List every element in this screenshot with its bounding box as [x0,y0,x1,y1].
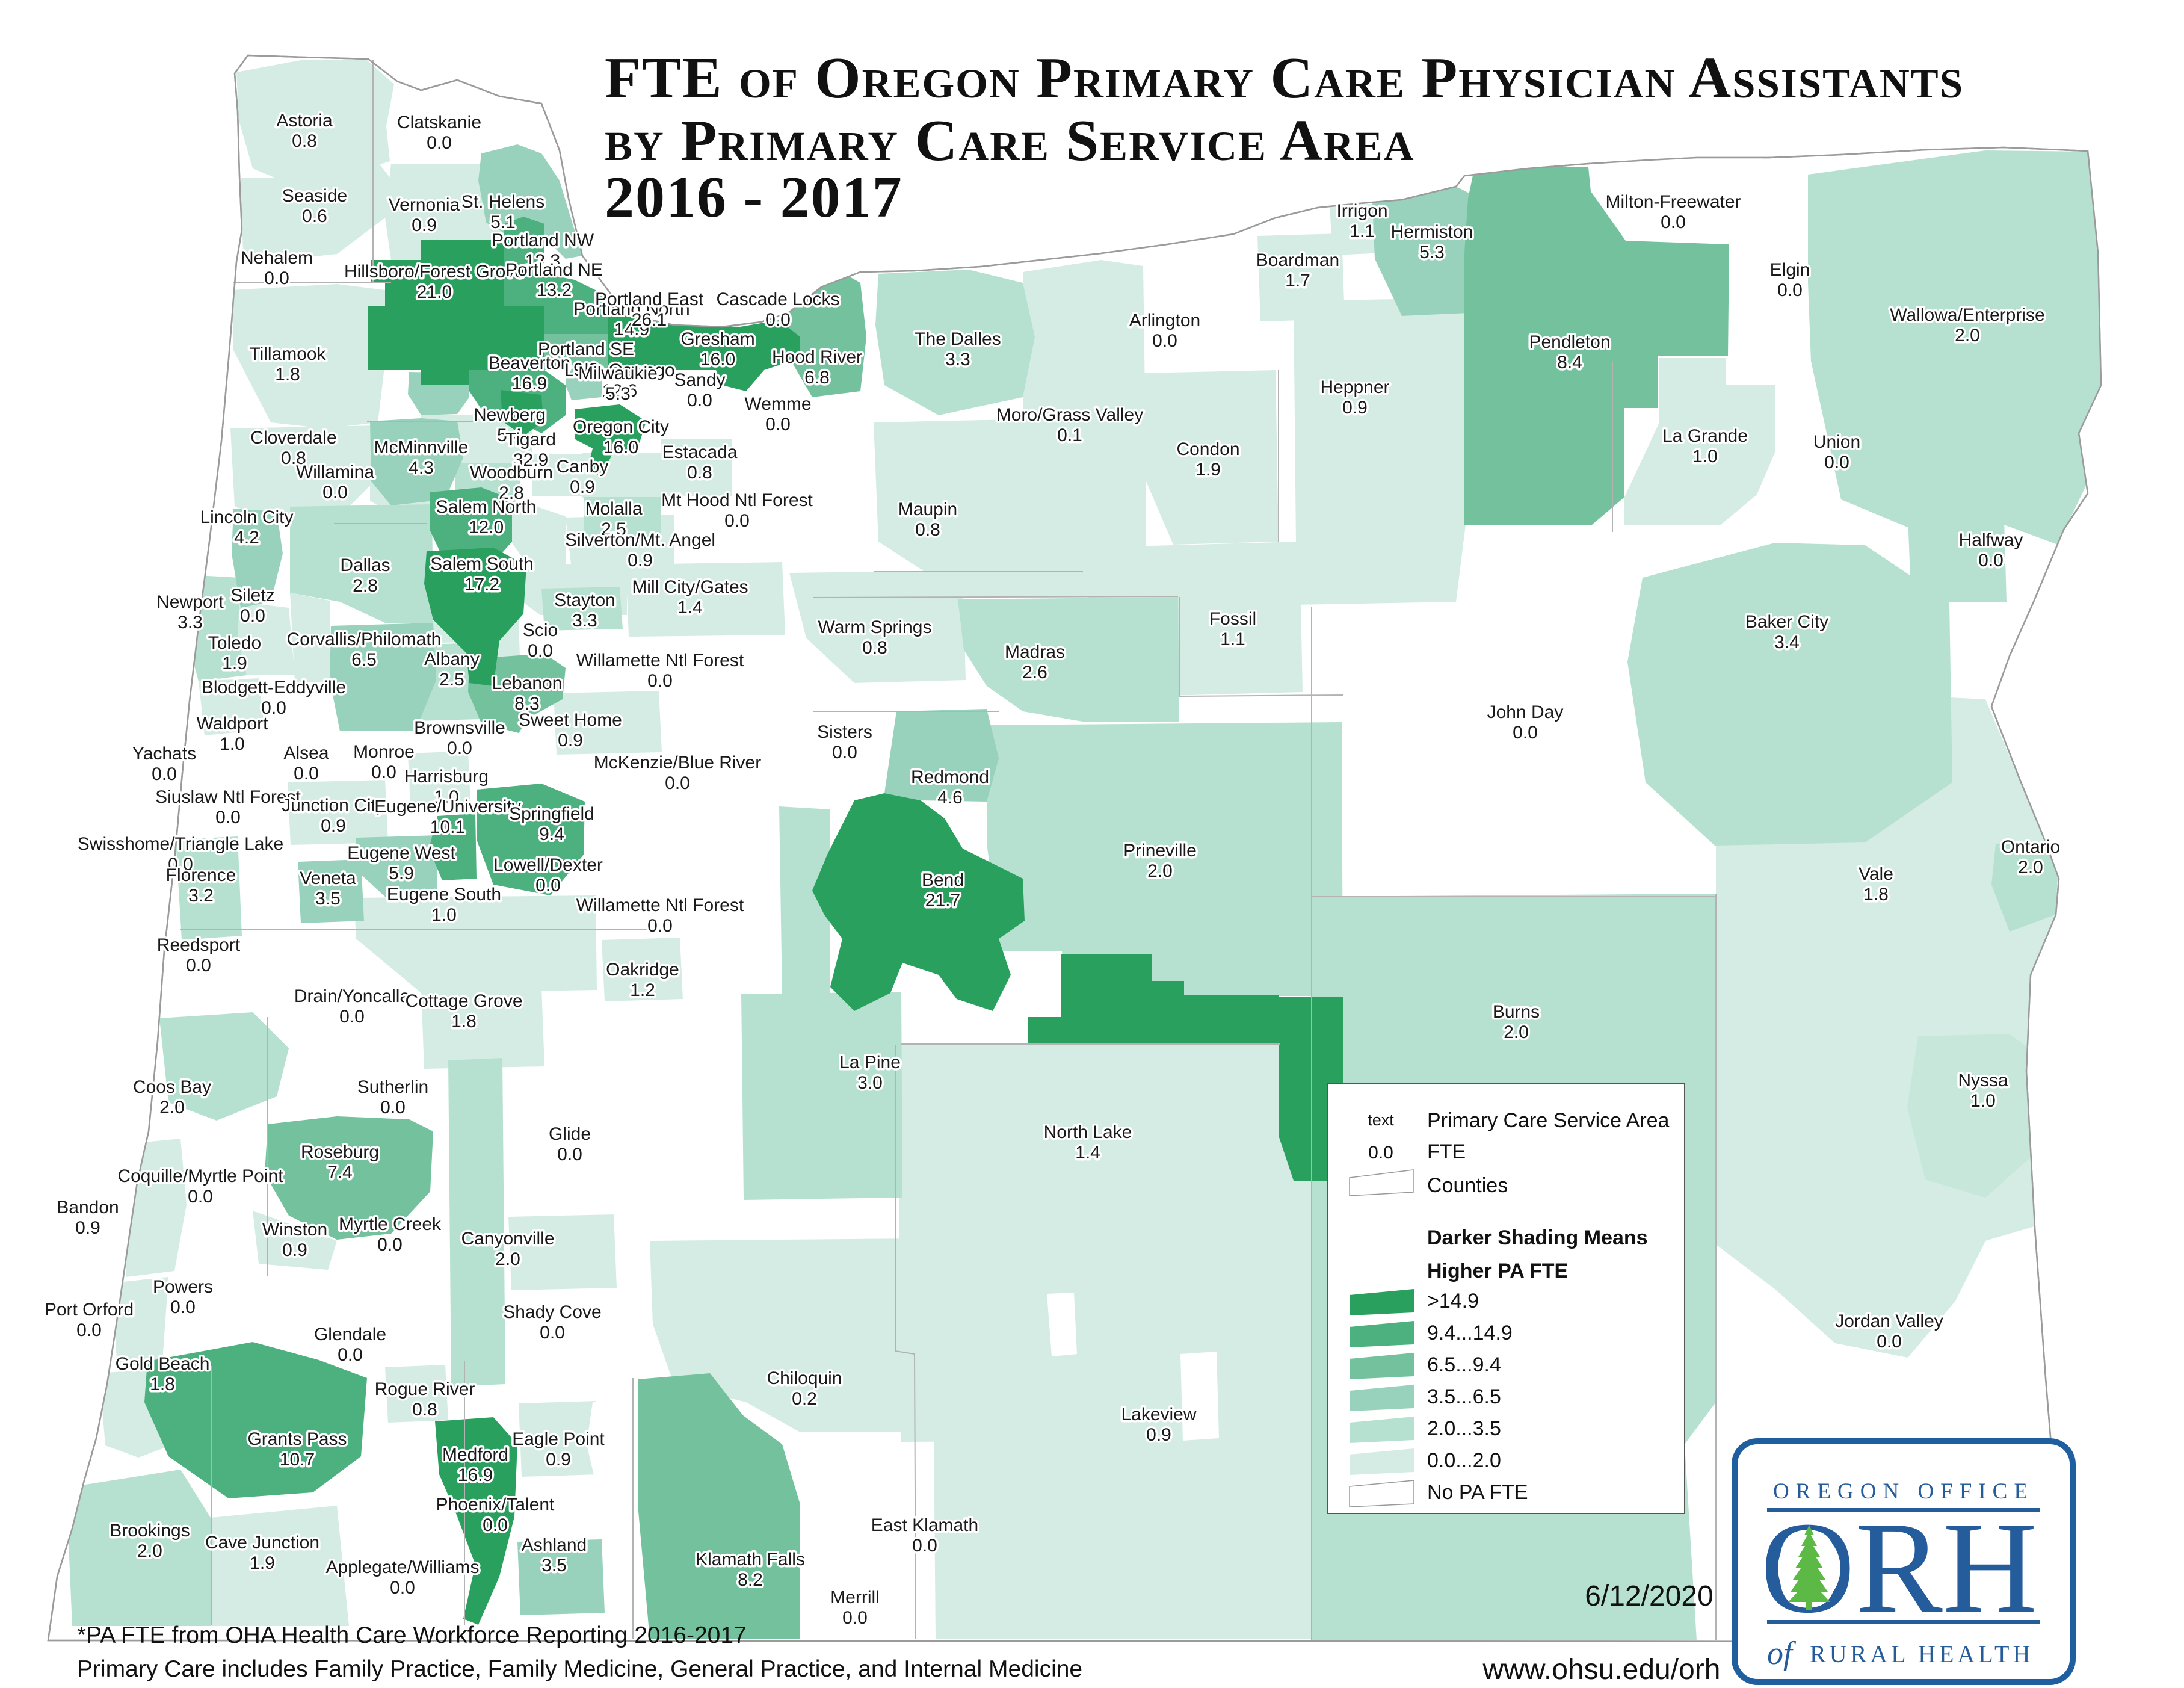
svg-text:McMinnville: McMinnville [374,437,469,457]
svg-text:6.5...9.4: 6.5...9.4 [1427,1353,1501,1376]
svg-text:2.0: 2.0 [1504,1022,1529,1042]
svg-text:0.6: 0.6 [302,206,327,226]
svg-text:Willamina: Willamina [296,462,374,482]
svg-text:Ashland: Ashland [522,1535,587,1555]
svg-text:0.0: 0.0 [1877,1332,1902,1352]
svg-text:Port Orford: Port Orford [45,1300,134,1320]
svg-text:Portland NW: Portland NW [492,230,594,250]
svg-text:Cave Junction: Cave Junction [205,1533,319,1553]
svg-text:Newberg: Newberg [474,405,546,425]
svg-text:Oregon City: Oregon City [573,417,669,437]
svg-text:Brookings: Brookings [110,1521,190,1541]
svg-text:Wallowa/Enterprise: Wallowa/Enterprise [1890,305,2044,325]
svg-text:3.5: 3.5 [541,1556,567,1575]
svg-text:8.2: 8.2 [738,1570,763,1590]
svg-text:Phoenix/Talent: Phoenix/Talent [436,1495,555,1515]
svg-text:St. Helens: St. Helens [461,192,544,212]
svg-text:1.8: 1.8 [150,1374,175,1394]
svg-text:Prineville: Prineville [1123,841,1197,861]
svg-text:0.0: 0.0 [188,1187,213,1207]
svg-text:2.5: 2.5 [439,670,464,690]
svg-text:0.0: 0.0 [832,743,857,762]
svg-text:1.1: 1.1 [1220,629,1245,649]
svg-text:Willamette Ntl Forest: Willamette Ntl Forest [576,651,744,670]
svg-text:Willamette Ntl Forest: Willamette Ntl Forest [576,895,744,915]
svg-text:Counties: Counties [1427,1174,1508,1197]
svg-text:Primary Care includes Family P: Primary Care includes Family Practice, F… [77,1656,1082,1682]
svg-text:0.9: 0.9 [412,215,437,235]
svg-text:Eugene/University: Eugene/University [374,797,520,817]
svg-text:1.8: 1.8 [1863,885,1889,904]
svg-text:Ontario: Ontario [2001,837,2060,857]
svg-text:Florence: Florence [166,865,236,885]
svg-text:Halfway: Halfway [1959,530,2023,550]
svg-text:0.0: 0.0 [427,133,452,153]
svg-text:Bandon: Bandon [57,1198,119,1217]
svg-text:Elgin: Elgin [1770,260,1810,280]
svg-text:3.3: 3.3 [177,613,203,632]
svg-text:1.9: 1.9 [1195,460,1221,480]
svg-text:Veneta: Veneta [300,868,356,888]
svg-text:16.0: 16.0 [603,437,638,457]
svg-text:1.0: 1.0 [1970,1091,1996,1111]
svg-text:5.3: 5.3 [1419,243,1445,262]
svg-text:Bend: Bend [922,870,964,890]
svg-text:Eugene West: Eugene West [347,843,455,863]
svg-text:1.0: 1.0 [431,905,457,925]
svg-text:0.0: 0.0 [535,876,561,895]
svg-text:4.6: 4.6 [937,788,963,808]
svg-text:0.0: 0.0 [1777,280,1803,300]
svg-text:Chiloquin: Chiloquin [767,1368,842,1388]
svg-text:Swisshome/Triangle Lake: Swisshome/Triangle Lake [78,834,283,854]
svg-text:0.0: 0.0 [339,1007,365,1027]
svg-text:Condon: Condon [1176,439,1239,459]
svg-text:Reedsport: Reedsport [157,935,241,955]
svg-text:2.0: 2.0 [137,1541,162,1561]
svg-text:Coquille/Myrtle Point: Coquille/Myrtle Point [117,1166,283,1186]
svg-text:1.9: 1.9 [222,654,247,673]
svg-text:0.0: 0.0 [647,916,673,936]
svg-text:Brownsville: Brownsville [414,718,505,738]
svg-text:Lincoln City: Lincoln City [200,507,293,527]
svg-text:12.0: 12.0 [469,518,504,537]
svg-text:10.1: 10.1 [430,817,465,837]
svg-text:4.3: 4.3 [409,458,434,478]
svg-text:Irrigon: Irrigon [1336,201,1387,221]
svg-text:Hood River: Hood River [772,347,862,367]
svg-text:1.4: 1.4 [677,598,703,617]
svg-text:Eugene South: Eugene South [387,885,501,904]
svg-text:1.8: 1.8 [451,1012,477,1031]
svg-text:3.3: 3.3 [945,350,970,369]
svg-text:Nehalem: Nehalem [241,248,313,268]
svg-text:No PA FTE: No PA FTE [1427,1481,1528,1504]
svg-text:>14.9: >14.9 [1427,1290,1479,1312]
svg-text:0.8: 0.8 [412,1400,437,1420]
svg-text:4.2: 4.2 [234,528,259,548]
svg-text:0.0: 0.0 [557,1145,582,1164]
svg-text:Klamath Falls: Klamath Falls [696,1550,805,1569]
svg-text:Maupin: Maupin [898,499,957,519]
svg-text:1.0: 1.0 [1692,447,1718,466]
svg-text:0.1: 0.1 [1057,425,1082,445]
svg-text:0.8: 0.8 [292,131,317,151]
svg-text:5.3: 5.3 [605,384,631,404]
svg-text:0.0: 0.0 [1978,551,2004,570]
svg-text:Yachats: Yachats [132,744,196,764]
svg-text:RURAL HEALTH: RURAL HEALTH [1810,1640,2034,1668]
svg-text:2016 - 2017: 2016 - 2017 [605,165,903,230]
svg-text:13.2: 13.2 [537,280,572,300]
svg-text:21.0: 21.0 [417,282,452,302]
svg-text:Siuslaw Ntl Forest: Siuslaw Ntl Forest [155,787,301,807]
svg-text:Albany: Albany [424,649,480,669]
svg-text:Warm Springs: Warm Springs [818,617,932,637]
svg-text:Vernonia: Vernonia [389,195,460,215]
svg-text:0.0: 0.0 [912,1536,937,1556]
svg-text:Eagle Point: Eagle Point [512,1429,605,1449]
svg-text:Lakeview: Lakeview [1121,1405,1196,1424]
svg-text:Portland East: Portland East [595,289,704,309]
svg-text:Baker City: Baker City [1745,612,1828,632]
svg-text:Hermiston: Hermiston [1391,222,1473,242]
svg-text:0.0...2.0: 0.0...2.0 [1427,1449,1501,1472]
svg-text:0.0: 0.0 [76,1320,102,1340]
svg-text:by Primary Care Service Area: by Primary Care Service Area [605,108,1415,173]
svg-text:Cottage Grove: Cottage Grove [405,991,522,1011]
svg-text:Corvallis/Philomath: Corvallis/Philomath [287,629,442,649]
svg-text:text: text [1368,1111,1394,1129]
svg-text:Cascade Locks: Cascade Locks [716,289,839,309]
svg-text:0.9: 0.9 [628,551,653,570]
svg-text:Silverton/Mt. Angel: Silverton/Mt. Angel [565,530,715,550]
svg-text:0.0: 0.0 [1152,331,1177,351]
svg-text:Merrill: Merrill [830,1588,880,1607]
svg-text:Lowell/Dexter: Lowell/Dexter [493,855,603,875]
svg-text:6/12/2020: 6/12/2020 [1585,1580,1714,1612]
svg-text:16.9: 16.9 [512,374,547,394]
svg-text:Scio: Scio [523,620,558,640]
svg-text:Lebanon: Lebanon [492,673,563,693]
svg-text:Oakridge: Oakridge [606,960,679,980]
svg-text:Stayton: Stayton [554,590,615,610]
svg-text:17.2: 17.2 [464,575,499,595]
svg-text:La Pine: La Pine [839,1053,901,1072]
svg-text:0.9: 0.9 [558,731,583,750]
svg-text:2.0: 2.0 [2018,858,2043,877]
svg-text:0.9: 0.9 [1146,1425,1171,1445]
svg-text:Milton-Freewater: Milton-Freewater [1605,192,1741,212]
svg-text:Cloverdale: Cloverdale [250,428,336,448]
svg-text:0.0: 0.0 [483,1515,508,1535]
svg-text:0.0: 0.0 [1368,1143,1393,1163]
svg-text:9.4...14.9: 9.4...14.9 [1427,1322,1513,1344]
svg-text:La Grande: La Grande [1662,426,1748,446]
svg-text:0.0: 0.0 [390,1578,415,1598]
svg-text:FTE of Oregon Primary Care Phy: FTE of Oregon Primary Care Physician Ass… [605,46,1964,111]
svg-text:Shady Cove: Shady Cove [503,1302,601,1322]
svg-text:Redmond: Redmond [911,767,989,787]
svg-text:Blodgett-Eddyville: Blodgett-Eddyville [202,678,346,697]
svg-text:0.0: 0.0 [540,1323,565,1343]
svg-text:Pendleton: Pendleton [1529,332,1610,352]
svg-text:0.0: 0.0 [170,1297,196,1317]
svg-text:1.7: 1.7 [1285,271,1310,291]
svg-text:0.9: 0.9 [570,477,595,497]
svg-text:0.0: 0.0 [842,1608,868,1628]
svg-text:Winston: Winston [262,1220,327,1240]
svg-text:6.8: 6.8 [804,368,830,388]
svg-text:3.3: 3.3 [572,611,597,631]
svg-text:Portland NE: Portland NE [505,260,603,280]
svg-text:Boardman: Boardman [1256,250,1339,270]
svg-text:1.1: 1.1 [1350,221,1375,241]
svg-text:Milwaukie: Milwaukie [578,363,658,383]
svg-text:2.0: 2.0 [159,1098,185,1118]
svg-text:Nyssa: Nyssa [1958,1071,2008,1090]
svg-text:Rogue River: Rogue River [375,1379,475,1399]
svg-text:Glide: Glide [549,1124,591,1144]
svg-text:2.0...3.5: 2.0...3.5 [1427,1417,1501,1440]
svg-text:1.0: 1.0 [220,734,245,754]
svg-text:Moro/Grass Valley: Moro/Grass Valley [996,405,1144,425]
svg-text:Vale: Vale [1859,864,1893,884]
svg-text:John Day: John Day [1487,702,1564,722]
svg-text:Glendale: Glendale [314,1325,386,1344]
svg-text:3.5...6.5: 3.5...6.5 [1427,1385,1501,1408]
svg-text:Seaside: Seaside [282,186,347,206]
svg-text:16.0: 16.0 [700,350,735,369]
svg-text:0.8: 0.8 [862,638,887,658]
svg-text:Toledo: Toledo [208,633,261,653]
svg-text:Heppner: Heppner [1320,377,1389,397]
svg-text:0.9: 0.9 [1342,398,1368,418]
svg-text:Gold Beach: Gold Beach [116,1354,210,1374]
svg-text:Siletz: Siletz [230,586,274,605]
svg-text:26.1: 26.1 [632,310,667,330]
svg-text:Salem North: Salem North [436,497,537,517]
svg-text:1.9: 1.9 [250,1553,275,1573]
svg-text:3.2: 3.2 [188,886,214,906]
svg-text:0.8: 0.8 [687,463,712,483]
svg-text:Canby: Canby [557,457,609,477]
svg-text:2.0: 2.0 [1955,326,1980,345]
svg-text:0.0: 0.0 [687,391,712,410]
svg-text:0.9: 0.9 [546,1450,571,1470]
svg-text:0.0: 0.0 [647,671,673,691]
svg-text:Sweet Home: Sweet Home [519,710,622,730]
svg-text:2.0: 2.0 [1147,861,1173,881]
svg-text:0.0: 0.0 [380,1098,406,1118]
svg-text:Gresham: Gresham [680,329,754,349]
svg-text:Portland SE: Portland SE [538,339,634,359]
svg-text:3.0: 3.0 [857,1073,883,1093]
svg-text:16.9: 16.9 [458,1465,493,1485]
svg-text:0.0: 0.0 [240,606,265,626]
svg-text:The Dalles: The Dalles [915,329,1001,349]
svg-text:1.8: 1.8 [275,365,300,385]
svg-text:1.4: 1.4 [1075,1143,1100,1163]
svg-text:Higher PA FTE: Higher PA FTE [1427,1260,1568,1282]
svg-text:Mill City/Gates: Mill City/Gates [632,577,748,597]
svg-text:0.0: 0.0 [371,762,396,782]
svg-text:Alsea: Alsea [283,743,329,763]
svg-text:21.7: 21.7 [925,891,960,910]
svg-text:5.9: 5.9 [389,864,414,883]
svg-text:Clatskanie: Clatskanie [397,113,481,132]
svg-text:Junction City: Junction City [282,796,385,815]
svg-text:Molalla: Molalla [585,499,642,519]
svg-text:8.4: 8.4 [1557,353,1582,373]
svg-text:Madras: Madras [1005,642,1065,662]
svg-text:*PA FTE from OHA Health Care W: *PA FTE from OHA Health Care Workforce R… [77,1622,747,1648]
svg-text:Springfield: Springfield [509,804,594,824]
svg-text:2.0: 2.0 [495,1249,520,1269]
svg-text:2.8: 2.8 [353,576,378,596]
svg-text:Powers: Powers [153,1277,213,1297]
svg-text:East Klamath: East Klamath [871,1515,978,1535]
svg-text:Union: Union [1813,432,1860,452]
svg-text:Applegate/Williams: Applegate/Williams [325,1557,479,1577]
svg-text:FTE: FTE [1427,1140,1466,1163]
svg-text:0.0: 0.0 [665,773,690,793]
svg-text:0.0: 0.0 [765,415,791,434]
svg-text:Mt Hood Ntl Forest: Mt Hood Ntl Forest [661,490,813,510]
svg-text:7.4: 7.4 [327,1163,353,1183]
svg-text:Fossil: Fossil [1209,609,1256,629]
svg-text:Myrtle Creek: Myrtle Creek [339,1214,442,1234]
svg-text:Astoria: Astoria [276,111,333,131]
svg-text:Hillsboro/Forest Grove: Hillsboro/Forest Grove [344,262,525,282]
svg-text:0.0: 0.0 [1824,453,1849,472]
svg-text:0.0: 0.0 [322,483,348,502]
svg-text:Canyonville: Canyonville [461,1229,554,1249]
svg-text:0.0: 0.0 [765,310,791,330]
svg-text:0.2: 0.2 [792,1389,817,1409]
svg-text:of: of [1767,1635,1797,1671]
svg-text:0.0: 0.0 [724,511,750,531]
svg-text:Newport: Newport [156,592,224,612]
svg-text:2.6: 2.6 [1022,663,1047,682]
svg-text:Jordan Valley: Jordan Valley [1835,1311,1943,1331]
svg-text:3.5: 3.5 [315,889,341,909]
svg-text:0.0: 0.0 [186,956,211,975]
svg-text:Arlington: Arlington [1129,311,1200,330]
svg-text:Monroe: Monroe [353,742,415,762]
svg-text:3.4: 3.4 [1774,632,1800,652]
svg-text:Grants Pass: Grants Pass [247,1429,347,1449]
svg-text:0.0: 0.0 [338,1345,363,1365]
svg-text:Burns: Burns [1493,1002,1540,1022]
svg-text:0.0: 0.0 [447,738,472,758]
svg-text:0.0: 0.0 [264,268,289,288]
svg-text:6.5: 6.5 [351,650,377,670]
svg-text:10.7: 10.7 [280,1450,315,1470]
svg-text:0.9: 0.9 [75,1218,100,1238]
svg-text:Waldport: Waldport [197,714,269,734]
svg-text:Dallas: Dallas [340,555,390,575]
svg-text:0.9: 0.9 [321,816,346,836]
svg-text:McKenzie/Blue River: McKenzie/Blue River [594,753,761,773]
svg-text:Woodburn: Woodburn [470,463,553,483]
svg-text:Estacada: Estacada [662,442,737,462]
svg-text:0.9: 0.9 [282,1240,307,1260]
svg-text:Sisters: Sisters [817,722,872,742]
svg-text:Tillamook: Tillamook [249,344,326,364]
svg-text:North Lake: North Lake [1044,1122,1132,1142]
svg-text:Harrisburg: Harrisburg [404,767,489,787]
svg-text:Coos Bay: Coos Bay [133,1077,211,1097]
svg-text:0.0: 0.0 [1513,723,1538,743]
svg-text:0.0: 0.0 [377,1235,403,1255]
svg-text:0.0: 0.0 [528,641,553,661]
svg-text:www.ohsu.edu/orh: www.ohsu.edu/orh [1482,1654,1721,1686]
svg-text:Sutherlin: Sutherlin [357,1077,428,1097]
svg-text:0.8: 0.8 [915,520,940,540]
svg-text:0.0: 0.0 [1661,212,1686,232]
svg-text:5.1: 5.1 [490,212,516,232]
svg-text:Medford: Medford [442,1445,508,1465]
svg-text:0.0: 0.0 [294,764,319,784]
svg-text:Salem South: Salem South [430,554,534,574]
svg-text:Sandy: Sandy [674,370,725,390]
svg-text:1.2: 1.2 [630,980,655,1000]
svg-text:Tigard: Tigard [505,430,556,450]
svg-text:9.4: 9.4 [539,824,564,844]
svg-text:Primary Care Service Area: Primary Care Service Area [1427,1109,1670,1132]
svg-text:0.0: 0.0 [215,808,241,827]
svg-text:Roseburg: Roseburg [301,1142,379,1162]
svg-text:0.0: 0.0 [152,764,177,784]
svg-text:Wemme: Wemme [744,394,811,414]
svg-text:Drain/Yoncalla: Drain/Yoncalla [294,986,410,1006]
svg-text:Darker Shading Means: Darker Shading Means [1427,1226,1648,1249]
